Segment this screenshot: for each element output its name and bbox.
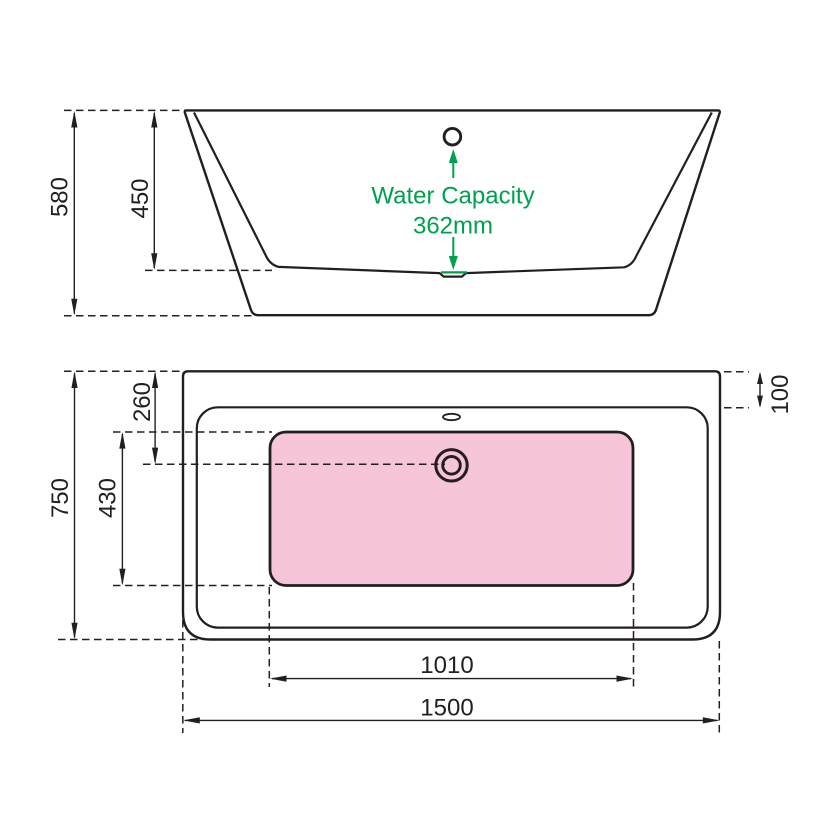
svg-text:580: 580 bbox=[47, 177, 74, 217]
svg-text:430: 430 bbox=[95, 478, 122, 518]
svg-text:362mm: 362mm bbox=[413, 213, 493, 240]
svg-text:1500: 1500 bbox=[420, 695, 473, 722]
svg-text:1010: 1010 bbox=[420, 652, 473, 679]
svg-text:450: 450 bbox=[127, 178, 154, 218]
svg-text:750: 750 bbox=[47, 478, 74, 518]
svg-text:260: 260 bbox=[129, 382, 156, 422]
svg-text:100: 100 bbox=[767, 374, 794, 414]
svg-text:Water Capacity: Water Capacity bbox=[371, 183, 534, 210]
